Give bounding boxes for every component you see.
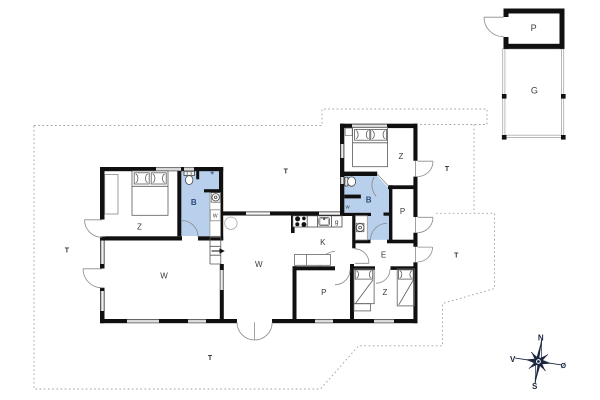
- svg-text:T: T: [208, 355, 213, 362]
- svg-text:Ø: Ø: [561, 363, 567, 370]
- svg-text:K: K: [320, 238, 326, 247]
- svg-text:V: V: [510, 355, 516, 364]
- svg-text:P: P: [321, 288, 326, 297]
- svg-text:g: g: [335, 219, 339, 226]
- svg-text:G: G: [531, 85, 538, 95]
- svg-text:E: E: [381, 250, 386, 259]
- svg-text:W: W: [213, 213, 218, 219]
- svg-text:N: N: [538, 333, 544, 342]
- svg-text:T: T: [65, 248, 70, 255]
- svg-text:B: B: [191, 198, 197, 207]
- svg-text:S: S: [532, 382, 538, 391]
- svg-text:Z: Z: [399, 152, 404, 161]
- svg-text:Z: Z: [383, 288, 388, 297]
- svg-text:T: T: [454, 253, 459, 260]
- svg-text:W: W: [255, 260, 263, 269]
- svg-text:P: P: [531, 23, 537, 33]
- svg-text:T: T: [445, 166, 450, 173]
- svg-text:W: W: [160, 272, 168, 281]
- svg-text:B: B: [366, 196, 372, 205]
- svg-text:T: T: [284, 168, 289, 175]
- svg-text:Z: Z: [137, 223, 142, 232]
- svg-text:P: P: [400, 207, 405, 216]
- svg-text:w: w: [345, 205, 350, 211]
